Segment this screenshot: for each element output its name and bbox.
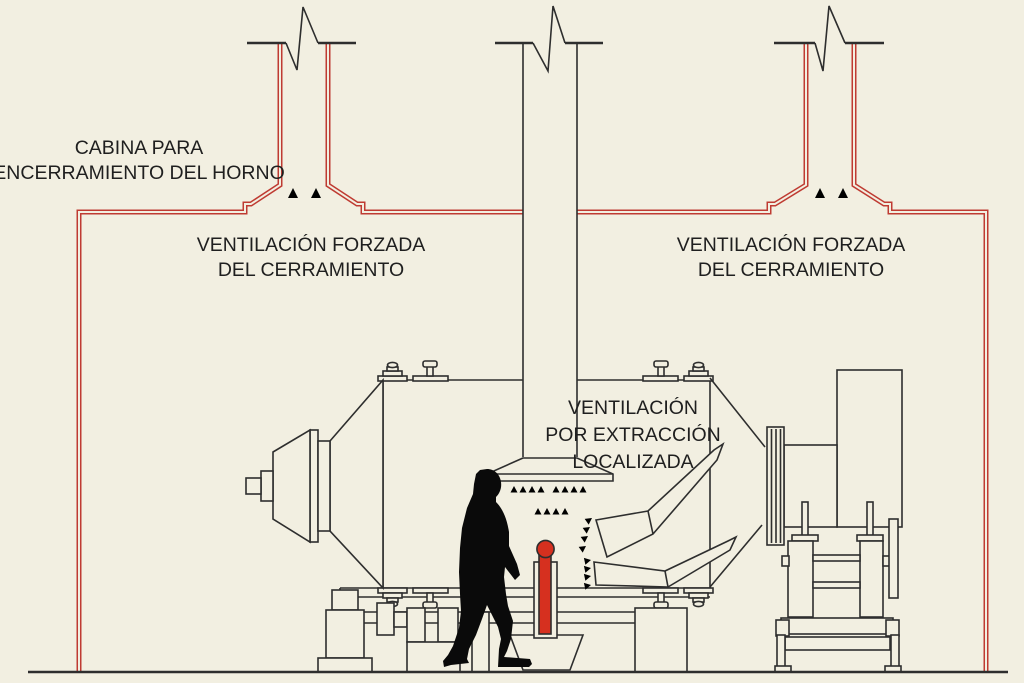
duct-center-break-symbol <box>495 6 603 71</box>
label-extraction-line2: POR EXTRACCIÓN <box>545 423 721 446</box>
industrial-ventilation-diagram: CABINA PARA ENCERRAMIENTO DEL HORNO VENT… <box>0 0 1024 683</box>
cabin-enclosure-outline <box>79 44 986 672</box>
label-forced-left-line1: VENTILACIÓN FORZADA <box>197 233 426 256</box>
label-extraction-line1: VENTILACIÓN <box>568 396 698 419</box>
extraction-duct <box>523 43 577 457</box>
label-cabin-line1: CABINA PARA <box>75 137 204 159</box>
labels: CABINA PARA ENCERRAMIENTO DEL HORNO VENT… <box>0 137 905 473</box>
furnace-front-cone <box>246 380 383 588</box>
hood-airflow-arrows-icon <box>511 486 587 523</box>
diagram-page: CABINA PARA ENCERRAMIENTO DEL HORNO VENT… <box>0 0 1024 683</box>
label-extraction-line3: LOCALIZADA <box>572 451 693 473</box>
duct-left-break-symbol <box>247 7 356 70</box>
duct-right-break-symbol <box>774 6 884 71</box>
label-forced-left-line2: DEL CERRAMIENTO <box>218 259 404 281</box>
hot-ingot <box>537 540 554 634</box>
chute-airflow-arrows-lower-icon <box>576 557 592 592</box>
chute-airflow-arrows-upper-icon <box>572 515 594 557</box>
label-forced-right-line1: VENTILACIÓN FORZADA <box>677 233 906 256</box>
label-cabin-line2: ENCERRAMIENTO DEL HORNO <box>0 162 285 184</box>
heat-exchanger-grille <box>767 427 784 545</box>
label-forced-right-line2: DEL CERRAMIENTO <box>698 259 884 281</box>
